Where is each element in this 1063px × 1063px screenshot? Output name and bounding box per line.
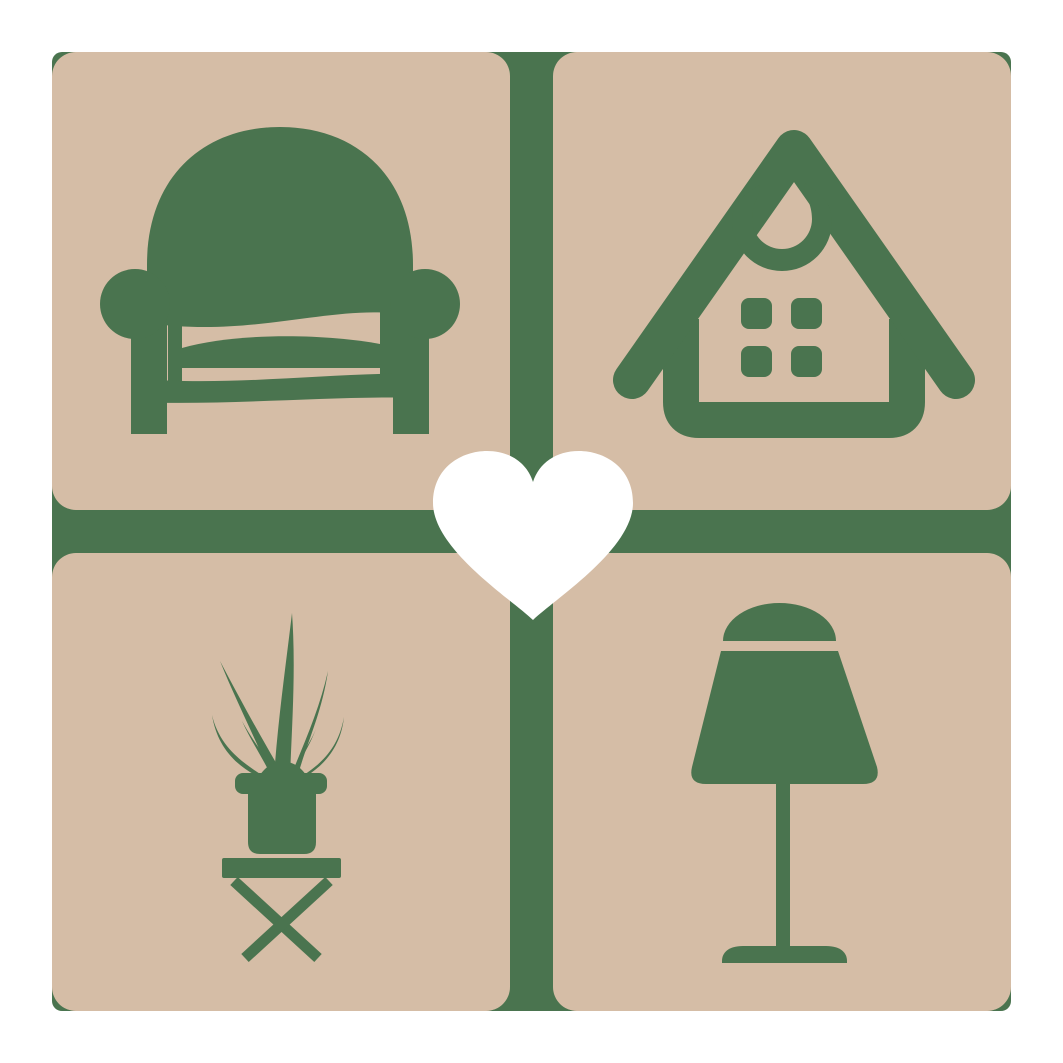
- tile-armchair: [52, 52, 510, 510]
- armchair-icon: [98, 127, 462, 440]
- heart-icon: [423, 447, 643, 623]
- potted-plant-icon: [210, 609, 348, 963]
- furniture-logo: [0, 0, 1063, 1063]
- tile-house: [553, 52, 1011, 510]
- table-lamp-icon: [691, 601, 878, 963]
- house-icon: [601, 123, 976, 440]
